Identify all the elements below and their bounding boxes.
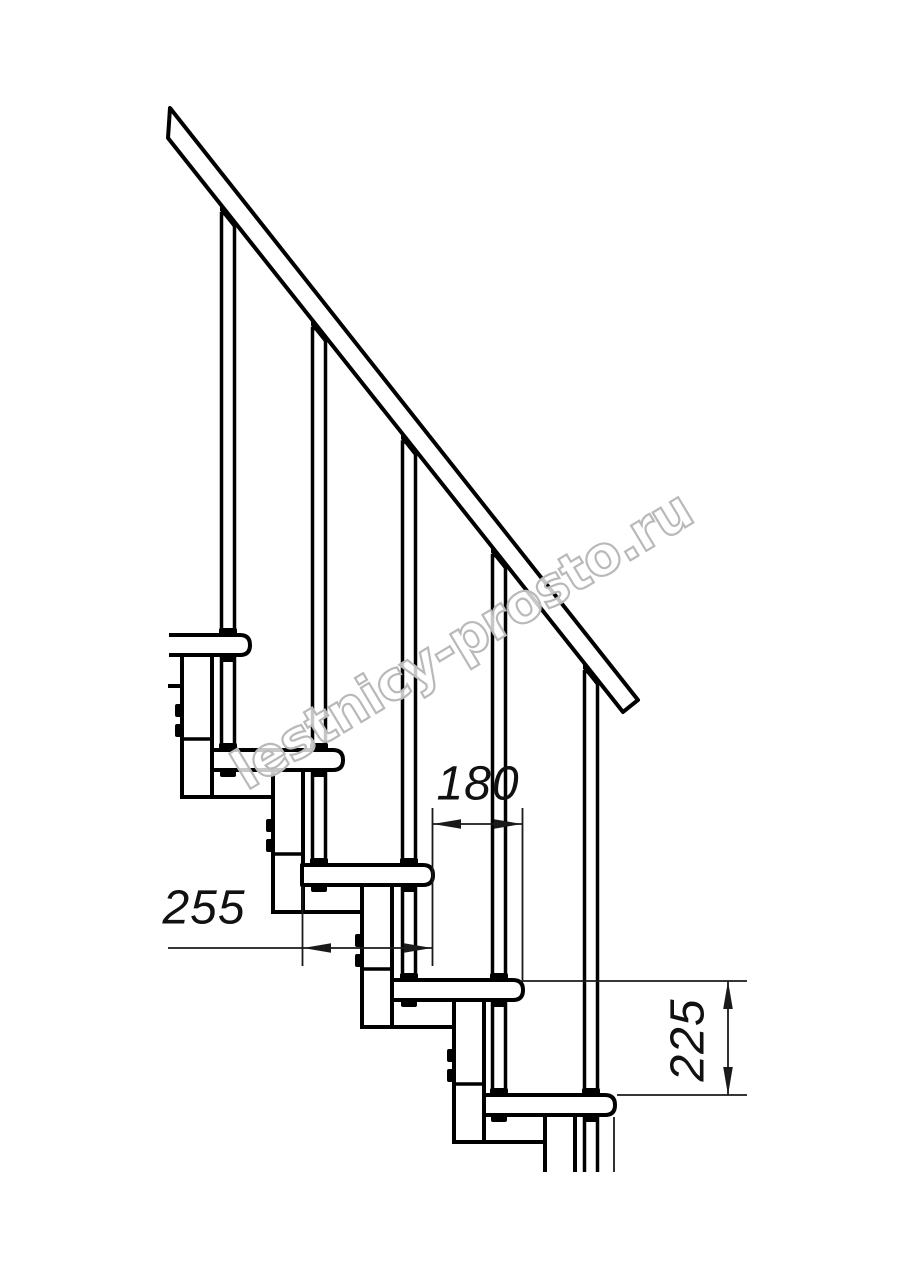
dimension-label-tread-depth: 255 bbox=[162, 881, 245, 936]
dimension-label-riser-height: 225 bbox=[661, 998, 716, 1081]
dimension-step-run bbox=[433, 808, 523, 980]
dimension-label-step-run: 180 bbox=[436, 757, 519, 812]
staircase-technical-drawing-page: 180 255 225 lestnicy-prosto.ru bbox=[0, 0, 914, 1280]
